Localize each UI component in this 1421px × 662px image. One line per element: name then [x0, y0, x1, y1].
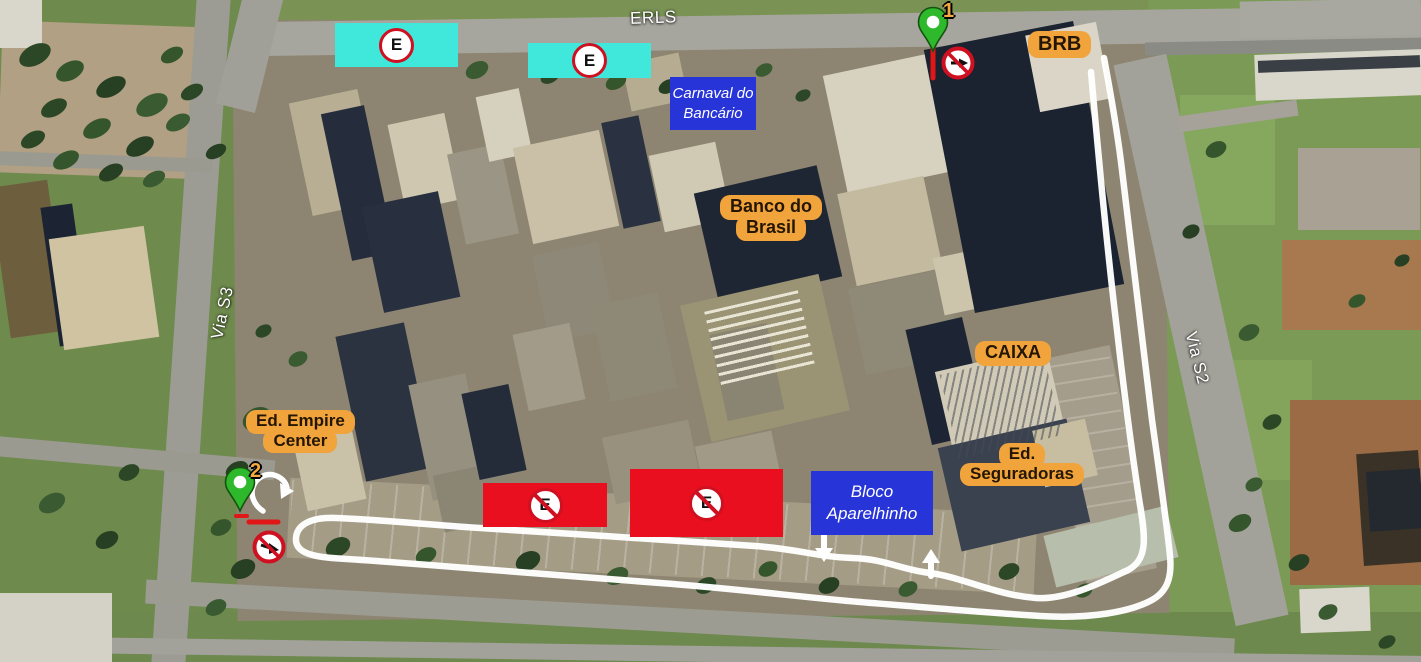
no-parking-E-symbol: E — [689, 486, 724, 521]
label-ed-seguradoras: Ed. Seguradoras — [960, 443, 1084, 486]
map-pin-2[interactable]: 2 — [223, 466, 257, 514]
map-pin-1[interactable]: 1 — [916, 6, 950, 54]
label-carnaval-do-bancario: Carnaval do Bancário — [670, 77, 756, 130]
label-bloco-aparelhinho: Bloco Aparelhinho — [811, 471, 933, 535]
parking-allowed-zone-1: E — [335, 23, 458, 67]
pin-number-1: 1 — [943, 0, 954, 23]
label-brb-text: BRB — [1028, 31, 1091, 58]
road-label-erls: ERLS — [630, 7, 677, 29]
map-canvas[interactable]: ERLS Via S3 Via S2 BRB Banco do Brasil C… — [0, 0, 1421, 662]
no-parking-zone-2: E — [630, 469, 783, 537]
parking-E-symbol: E — [572, 43, 607, 78]
label-brb: BRB — [1028, 31, 1091, 58]
no-parking-zone-1: E — [483, 483, 607, 527]
pin-number-2: 2 — [250, 460, 261, 483]
no-entry-sign-2 — [255, 533, 284, 562]
parking-allowed-zone-2: E — [528, 43, 651, 78]
label-banco-do-brasil: Banco do Brasil — [720, 195, 822, 241]
no-parking-E-symbol: E — [528, 488, 563, 523]
label-ed-empire-center: Ed. Empire Center — [246, 410, 355, 453]
parking-E-symbol: E — [379, 28, 414, 63]
label-caixa: CAIXA — [975, 341, 1051, 366]
